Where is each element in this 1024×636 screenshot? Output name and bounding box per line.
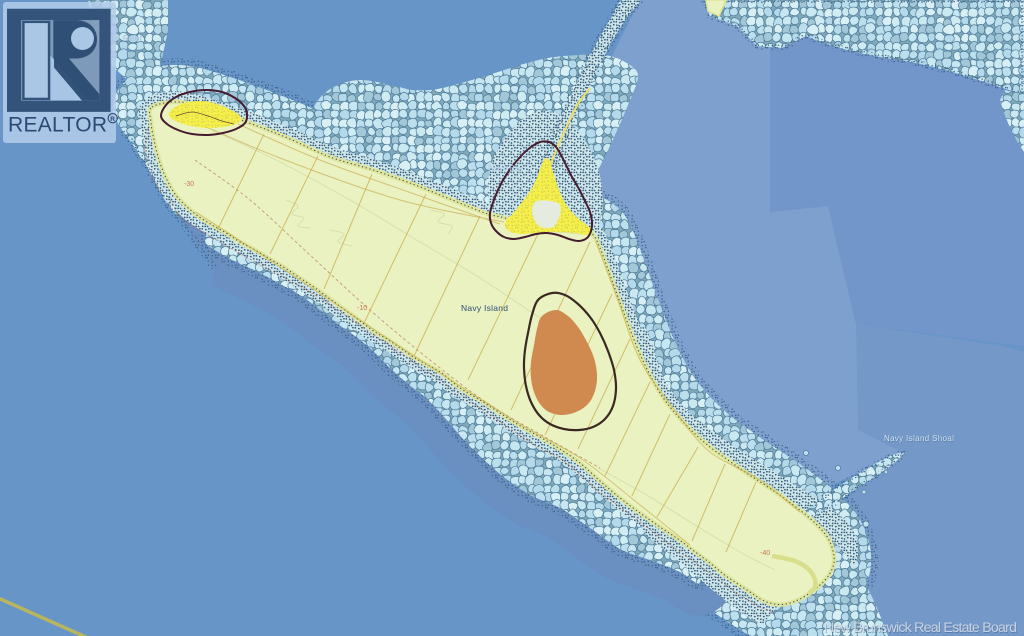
svg-text:Navy Island Shoal: Navy Island Shoal: [884, 434, 954, 443]
svg-text:New Brunswick Real Estate Boar: New Brunswick Real Estate Board: [824, 620, 1017, 636]
svg-text:REALTOR: REALTOR: [8, 114, 107, 137]
svg-text:Navy Bay: Navy Bay: [489, 164, 523, 173]
svg-text:-10: -10: [357, 305, 367, 312]
svg-text:-40: -40: [760, 550, 770, 557]
svg-text:R: R: [110, 116, 115, 123]
svg-text:-30: -30: [184, 181, 194, 188]
svg-text:Navy Island: Navy Island: [461, 303, 508, 313]
